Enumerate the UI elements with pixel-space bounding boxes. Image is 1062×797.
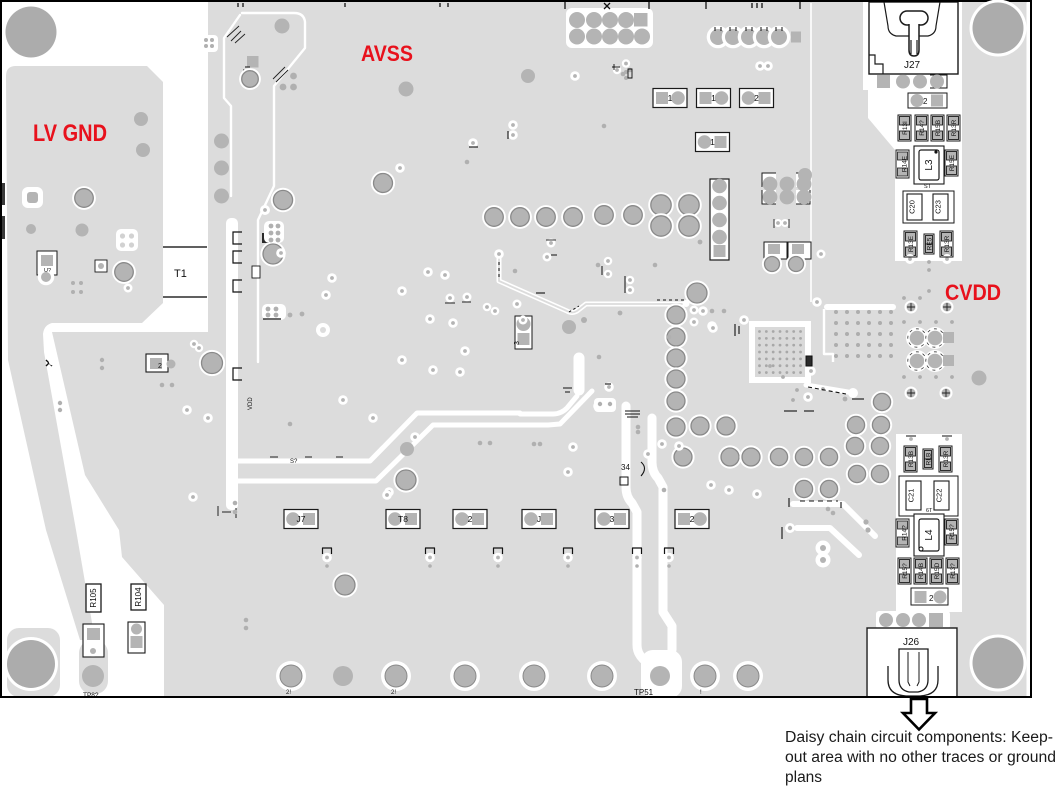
svg-text:R104: R104 — [134, 587, 143, 607]
svg-text:C20: C20 — [908, 200, 917, 214]
svg-text:CVDD: CVDD — [945, 280, 1001, 305]
svg-text:2: 2 — [158, 363, 162, 370]
svg-text:Daisy chain circuit components: Daisy chain circuit components: Keep- — [785, 729, 1053, 746]
svg-text:RLB: RLB — [925, 453, 932, 466]
svg-text:U?: U? — [44, 268, 51, 274]
svg-text:J26: J26 — [903, 637, 920, 648]
svg-text:R15D: R15D — [934, 562, 941, 579]
svg-text:R15B: R15B — [935, 120, 942, 136]
svg-text:R15?: R15? — [949, 524, 956, 540]
svg-text:R13?: R13? — [950, 563, 957, 579]
svg-text:3: 3 — [514, 341, 521, 345]
svg-text:out area with no other traces: out area with no other traces or ground — [785, 749, 1056, 766]
svg-text:2!: 2! — [391, 690, 396, 696]
svg-text:2: 2 — [923, 97, 928, 106]
svg-text:R14?: R14? — [902, 525, 909, 541]
svg-text:R13E: R13E — [908, 235, 915, 252]
svg-text:R14?: R14? — [919, 120, 926, 136]
svg-text:R105: R105 — [89, 588, 98, 608]
svg-text:C23: C23 — [934, 200, 943, 214]
svg-text:C21: C21 — [907, 489, 916, 503]
svg-text:R13R: R13R — [944, 235, 951, 252]
svg-text:R14B: R14B — [918, 563, 925, 579]
svg-text:R15E: R15E — [949, 154, 956, 171]
svg-text:1: 1 — [711, 93, 716, 103]
svg-text:plans: plans — [785, 769, 822, 786]
svg-text:TP51: TP51 — [634, 688, 654, 697]
svg-text:T1: T1 — [174, 268, 187, 280]
svg-text:R13B: R13B — [908, 451, 915, 467]
svg-text:J27: J27 — [904, 60, 921, 71]
svg-text:2: 2 — [929, 594, 934, 603]
svg-text:2: 2 — [690, 514, 695, 524]
svg-text:AVSS: AVSS — [361, 41, 413, 66]
svg-text:T8: T8 — [398, 514, 408, 524]
svg-text:R13I: R13I — [902, 121, 909, 135]
svg-text:2!: 2! — [286, 690, 291, 696]
svg-text:1: 1 — [710, 137, 715, 147]
svg-text:S?: S? — [290, 459, 298, 465]
svg-text:C22: C22 — [935, 489, 944, 503]
svg-text:J7: J7 — [297, 514, 306, 524]
svg-text:R14E: R14E — [902, 155, 909, 172]
svg-text:R13R: R13R — [943, 450, 950, 467]
svg-text:L4: L4 — [924, 529, 935, 541]
svg-text:34: 34 — [621, 463, 630, 472]
svg-text:RE5: RE5 — [926, 237, 933, 250]
svg-text:LV GND: LV GND — [33, 120, 107, 147]
svg-text:VDD: VDD — [248, 397, 254, 410]
svg-text:2: 2 — [754, 93, 759, 103]
svg-text:R13R: R13R — [951, 119, 958, 136]
svg-text:2: 2 — [468, 514, 473, 524]
svg-text:J: J — [537, 514, 541, 524]
svg-text:3: 3 — [610, 514, 615, 524]
svg-text:ST: ST — [924, 184, 932, 190]
svg-text:L3: L3 — [924, 159, 935, 171]
svg-text:6T: 6T — [926, 508, 933, 514]
svg-text:R15?: R15? — [902, 563, 909, 579]
svg-text:1: 1 — [668, 93, 673, 103]
